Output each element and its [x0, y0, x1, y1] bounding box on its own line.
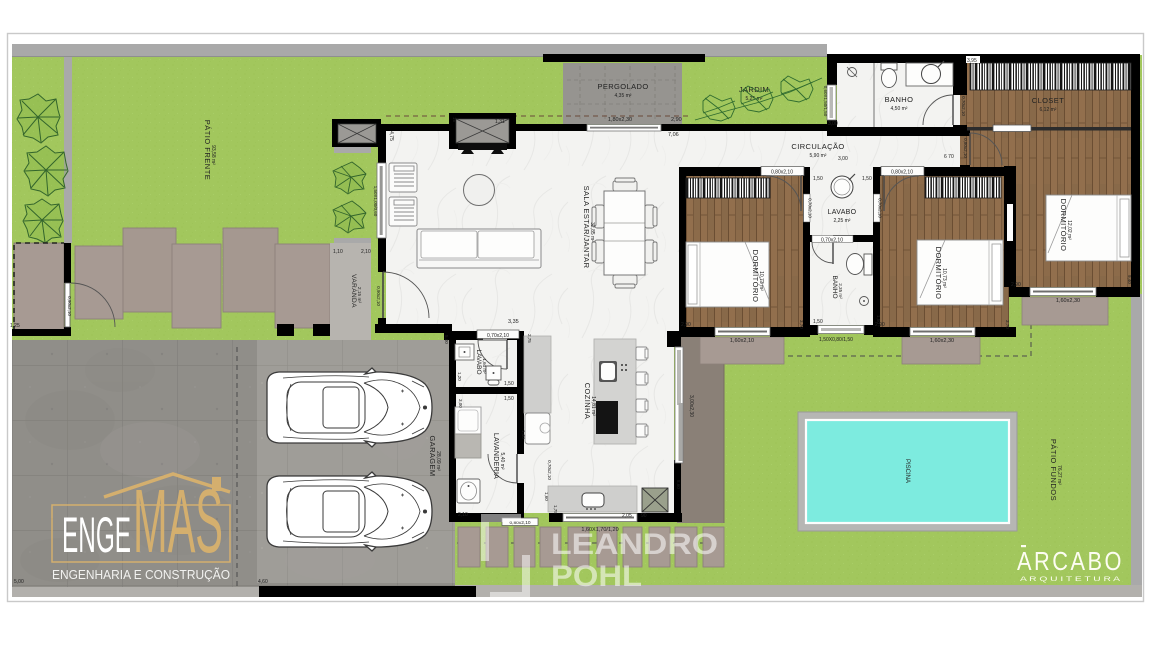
svg-text:BANHO: BANHO	[831, 275, 838, 298]
svg-text:10,73 m²: 10,73 m²	[941, 268, 947, 288]
svg-text:8,60: 8,60	[676, 480, 681, 489]
svg-text:14,81 m²: 14,81 m²	[590, 396, 596, 416]
svg-text:LAVABO: LAVABO	[828, 209, 857, 216]
svg-text:2,90: 2,90	[875, 322, 885, 328]
svg-text:1,60x2,30: 1,60x2,30	[1056, 298, 1080, 304]
svg-text:LAVANDERIA: LAVANDERIA	[492, 433, 499, 479]
svg-text:2,75: 2,75	[527, 334, 532, 343]
svg-text:1,50: 1,50	[504, 381, 514, 387]
svg-text:1,20: 1,20	[457, 372, 462, 381]
svg-text:4,50 m²: 4,50 m²	[891, 106, 908, 112]
svg-text:76,27 m²: 76,27 m²	[1056, 465, 1062, 485]
svg-text:32,85 m²: 32,85 m²	[589, 222, 595, 242]
svg-text:1,75: 1,75	[553, 505, 558, 514]
svg-text:2,25 m²: 2,25 m²	[834, 218, 851, 224]
svg-text:POHL: POHL	[551, 560, 642, 593]
svg-text:ARCABO: ARCABO	[1017, 546, 1124, 576]
svg-text:2,10: 2,10	[361, 249, 371, 255]
svg-text:1,60x2,10: 1,60x2,10	[730, 338, 754, 344]
svg-text:90: 90	[641, 513, 647, 519]
svg-text:12,02 m²: 12,02 m²	[1066, 220, 1072, 240]
svg-text:3,70: 3,70	[1005, 320, 1010, 329]
svg-text:1,10: 1,10	[333, 249, 343, 255]
svg-text:2,15 m²: 2,15 m²	[356, 287, 362, 304]
svg-text:0,70x2,10: 0,70x2,10	[821, 238, 843, 244]
svg-text:7,06: 7,06	[668, 132, 679, 138]
svg-text:0,70x2,10: 0,70x2,10	[878, 198, 883, 218]
svg-text:1,50: 1,50	[813, 176, 823, 182]
svg-text:CIRCULAÇÃO: CIRCULAÇÃO	[791, 142, 844, 151]
svg-text:28,09 m²: 28,09 m²	[435, 451, 441, 471]
svg-text:5,90 m²: 5,90 m²	[810, 153, 827, 159]
svg-text:3,00: 3,00	[458, 399, 463, 408]
svg-text:2,90: 2,90	[681, 322, 691, 328]
svg-text:93,58 m²: 93,58 m²	[210, 145, 216, 165]
svg-text:A R Q U I T E T U R A: A R Q U I T E T U R A	[1020, 577, 1120, 583]
svg-text:0,80x2,10: 0,80x2,10	[771, 170, 793, 176]
svg-text:0,90x2,10: 0,90x2,10	[376, 286, 381, 306]
svg-text:BANHO: BANHO	[885, 95, 914, 104]
svg-text:6 70: 6 70	[944, 154, 954, 160]
svg-text:MAS: MAS	[133, 472, 223, 572]
svg-text:ENGE: ENGE	[62, 507, 131, 563]
svg-text:0,80x2,10: 0,80x2,10	[963, 138, 968, 158]
svg-text:16: 16	[452, 117, 457, 123]
svg-text:6,12 m²: 6,12 m²	[1040, 107, 1057, 113]
svg-text:3,00: 3,00	[838, 156, 848, 162]
svg-text:0,70x2,10: 0,70x2,10	[808, 198, 813, 218]
svg-text:3,35: 3,35	[508, 319, 519, 325]
svg-text:1,31: 1,31	[495, 119, 505, 125]
svg-text:4,75: 4,75	[388, 131, 394, 141]
svg-text:3,00x2,30: 3,00x2,30	[688, 395, 694, 417]
svg-text:1,60 m²: 1,60 m²	[482, 358, 487, 374]
svg-text:0,80x2,10: 0,80x2,10	[891, 170, 913, 176]
svg-text:1,50X0,80/1,50: 1,50X0,80/1,50	[819, 337, 853, 343]
svg-text:0,90x2,10: 0,90x2,10	[67, 296, 72, 316]
svg-text:1,50: 1,50	[813, 319, 823, 325]
svg-text:1,80x2,30: 1,80x2,30	[608, 117, 632, 123]
svg-text:0,70x2,10: 0,70x2,10	[547, 460, 552, 480]
svg-text:VARANDA: VARANDA	[350, 274, 357, 308]
svg-text:2,35 m²: 2,35 m²	[838, 283, 843, 299]
svg-text:1,25: 1,25	[10, 323, 20, 329]
svg-text:1,60: 1,60	[544, 492, 549, 501]
svg-text:CLOSET: CLOSET	[1032, 96, 1064, 105]
svg-text:LEANDRO: LEANDRO	[551, 528, 718, 561]
svg-text:5,00: 5,00	[14, 579, 24, 585]
svg-text:9,40: 9,40	[1127, 275, 1132, 284]
svg-text:4,35 m²: 4,35 m²	[615, 93, 632, 99]
svg-text:3,95: 3,95	[967, 58, 977, 64]
svg-text:2,90: 2,90	[671, 117, 682, 123]
svg-text:PISCINA: PISCINA	[904, 459, 910, 483]
svg-text:3,00: 3,00	[828, 121, 838, 127]
svg-text:1,50: 1,50	[504, 396, 514, 402]
svg-text:ENGENHARIA E CONSTRUÇÃO: ENGENHARIA E CONSTRUÇÃO	[52, 568, 230, 582]
svg-text:2,90: 2,90	[1011, 282, 1021, 288]
svg-text:0,70x2,10: 0,70x2,10	[961, 96, 966, 116]
svg-text:1,50: 1,50	[862, 176, 872, 182]
svg-text:1,60x2,30: 1,60x2,30	[930, 338, 954, 344]
svg-text:0,60X1,50/1,50: 0,60X1,50/1,50	[823, 86, 828, 117]
svg-text:0,70x2,10: 0,70x2,10	[487, 333, 509, 339]
svg-text:PERGOLADO: PERGOLADO	[597, 82, 648, 91]
svg-text:1,50X1,00/0,60: 1,50X1,00/0,60	[373, 186, 378, 217]
svg-text:2,05: 2,05	[622, 513, 632, 519]
svg-text:2,10: 2,10	[458, 512, 468, 518]
svg-text:4,60: 4,60	[258, 579, 268, 585]
svg-text:LAVABO: LAVABO	[475, 349, 482, 374]
svg-text:5,00: 5,00	[444, 335, 449, 344]
svg-text:1,40: 1,40	[521, 430, 526, 439]
svg-text:3,70: 3,70	[799, 320, 804, 329]
svg-text:10,73 m²: 10,73 m²	[758, 271, 764, 291]
svg-text:5,40 m²: 5,40 m²	[499, 453, 505, 470]
